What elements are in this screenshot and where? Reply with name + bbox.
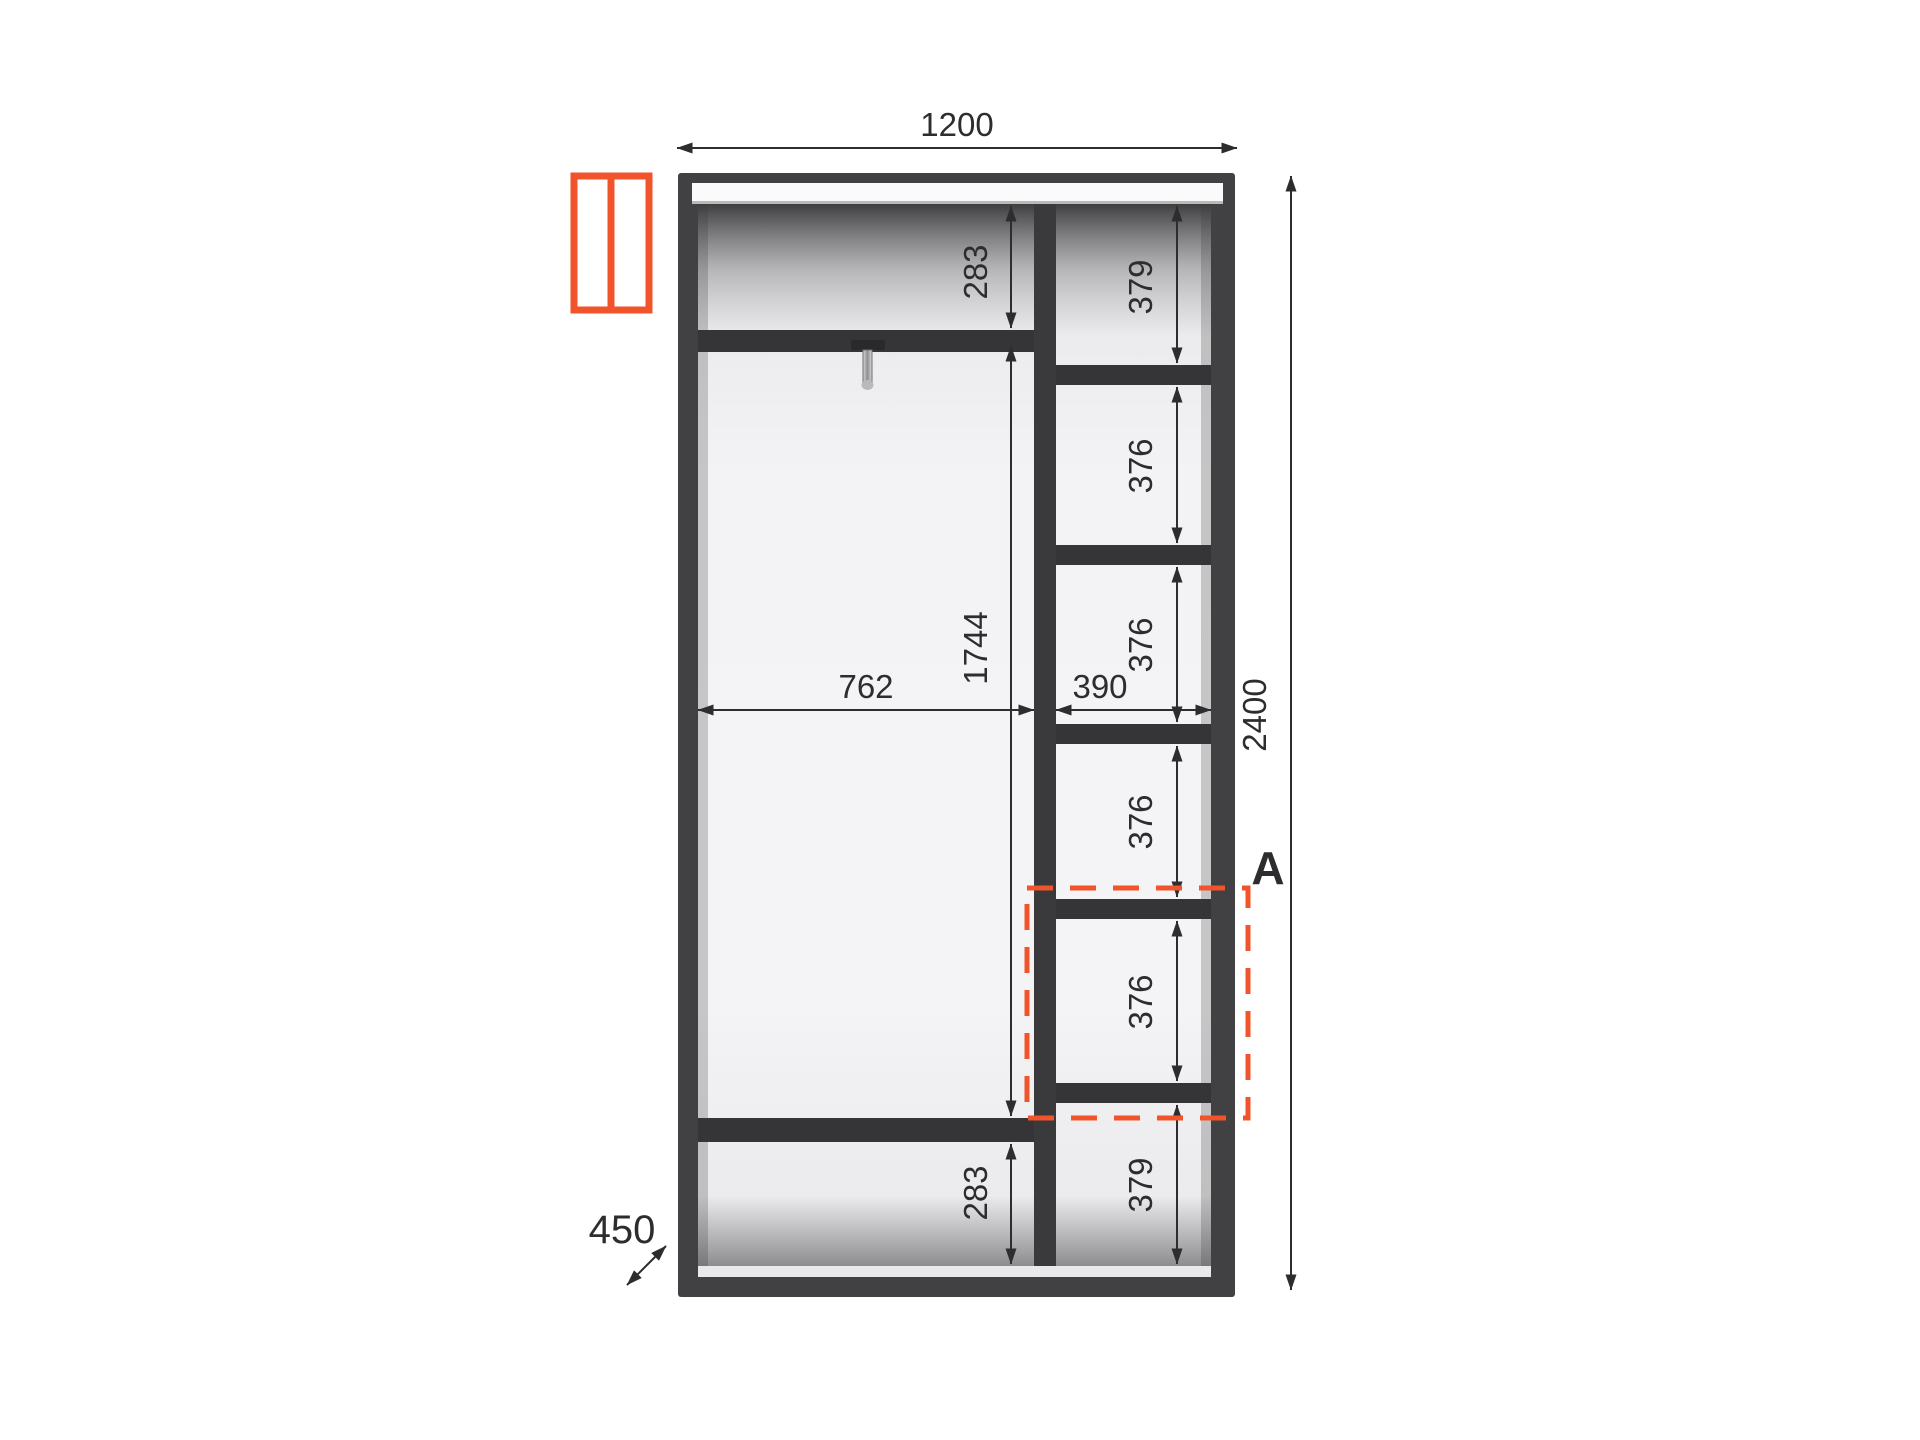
wardrobe-dimension-diagram: 1200 2400 450 762 390 283 1744 283 379 3…: [0, 0, 1920, 1440]
dim-overall-height-label: 2400: [1236, 678, 1273, 751]
dim-right-row-5-label: 376: [1122, 974, 1159, 1029]
dim-right-row-2-label: 376: [1122, 438, 1159, 493]
dim-left-top-space-label: 283: [957, 244, 994, 299]
dim-left-bottom-space-label: 283: [957, 1165, 994, 1220]
top-panel-strip: [692, 183, 1223, 203]
left-bottom-shelf: [698, 1118, 1034, 1142]
two-door-wardrobe-icon: [574, 176, 649, 310]
divider-panel: [1034, 204, 1056, 1266]
plinth-strip: [698, 1266, 1211, 1277]
dim-left-middle-space-label: 1744: [957, 611, 994, 684]
right-shelf-1: [1056, 365, 1211, 385]
dim-right-width-label: 390: [1072, 668, 1127, 705]
bracket-pin: [863, 350, 872, 382]
dim-right-row-6-label: 379: [1122, 1157, 1159, 1212]
right-shelf-4: [1056, 899, 1211, 919]
dim-depth-label: 450: [589, 1208, 656, 1252]
dim-overall-width-label: 1200: [920, 106, 993, 143]
detail-a-label: A: [1251, 842, 1284, 894]
bracket-plate: [851, 340, 885, 350]
left-wall-shadow: [698, 204, 708, 1266]
dim-right-row-1-label: 379: [1122, 259, 1159, 314]
right-shelf-3: [1056, 724, 1211, 744]
dim-right-row-3-label: 376: [1122, 617, 1159, 672]
bracket-tip: [862, 380, 874, 390]
dim-right-row-4-label: 376: [1122, 794, 1159, 849]
dim-left-width-label: 762: [838, 668, 893, 705]
top-panel-edge: [692, 201, 1223, 204]
right-shelf-2: [1056, 545, 1211, 565]
diagram-svg: 1200 2400 450 762 390 283 1744 283 379 3…: [0, 0, 1920, 1440]
right-shelf-5: [1056, 1083, 1211, 1103]
wardrobe-body: [678, 173, 1235, 1297]
